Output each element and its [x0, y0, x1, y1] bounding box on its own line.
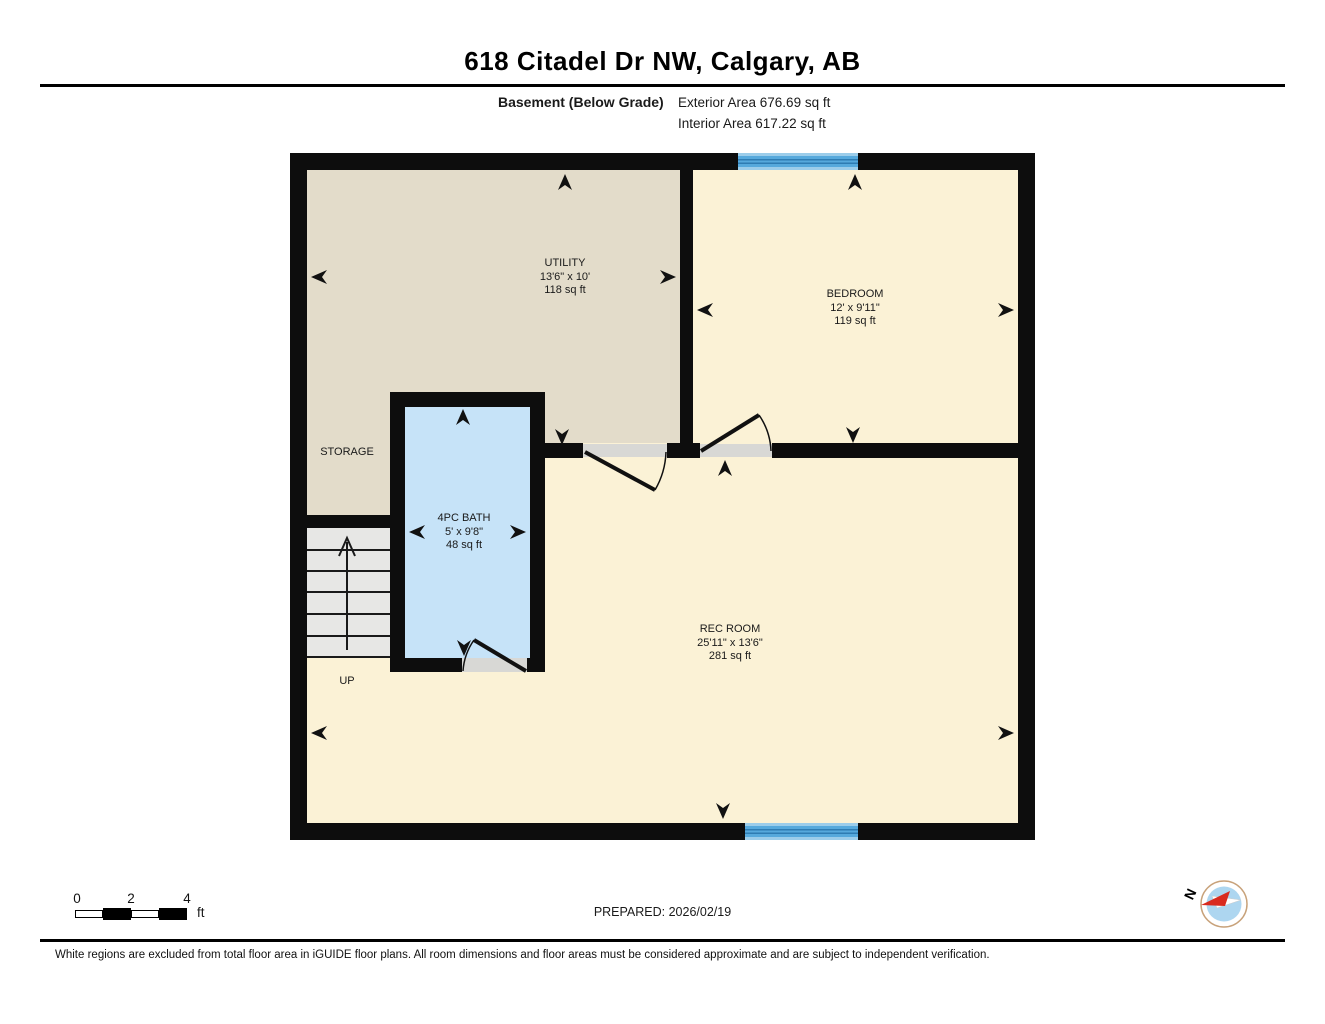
- wall-outer-bottom: [290, 823, 1035, 840]
- room-area: 118 sq ft: [540, 284, 590, 298]
- disclaimer-text: White regions are excluded from total fl…: [55, 949, 990, 961]
- scale-tick-2: 2: [127, 891, 135, 906]
- utility-room-label: UTILITY 13'6" x 10' 118 sq ft: [540, 257, 590, 298]
- room-name: BEDROOM: [827, 288, 884, 302]
- scale-tick-0: 0: [73, 891, 81, 906]
- wall-bedroom-recroom-divider: [772, 443, 1018, 458]
- floor-plan-page: 618 Citadel Dr NW, Calgary, AB Basement …: [0, 0, 1325, 1024]
- room-name: 4PC BATH: [438, 512, 491, 526]
- wall-utility-bedroom-divider: [680, 170, 693, 458]
- bedroom-door-sill: [700, 444, 772, 457]
- up-label: UP: [339, 675, 354, 687]
- utility-door-sill: [583, 444, 667, 457]
- scale-tick-4: 4: [183, 891, 191, 906]
- room-dims: 25'11" x 13'6": [697, 636, 763, 650]
- bedroom-window: [738, 153, 858, 170]
- rec-room-window: [745, 823, 858, 840]
- storage-label: STORAGE: [320, 446, 374, 458]
- room-area: 48 sq ft: [438, 539, 491, 553]
- bath-label: 4PC BATH 5' x 9'8" 48 sq ft: [438, 512, 491, 553]
- wall-outer-left: [290, 153, 307, 840]
- footer-divider-line: [40, 939, 1285, 942]
- wall-hall-segment-left: [545, 443, 583, 458]
- compass-icon: [1196, 876, 1252, 932]
- rec-room-label: REC ROOM 25'11" x 13'6" 281 sq ft: [697, 623, 763, 664]
- stairs: [307, 528, 390, 658]
- bath-door-sill: [462, 658, 527, 672]
- wall-outer-top: [290, 153, 1035, 170]
- room-name: REC ROOM: [697, 623, 763, 637]
- wall-hall-segment-mid: [667, 443, 700, 458]
- room-dims: 12' x 9'11": [827, 301, 884, 315]
- room-dims: 5' x 9'8": [438, 525, 491, 539]
- floor-plan: UTILITY 13'6" x 10' 118 sq ft BEDROOM 12…: [0, 0, 1325, 1024]
- wall-outer-right: [1018, 153, 1035, 840]
- room-area: 281 sq ft: [697, 650, 763, 664]
- room-name: UTILITY: [540, 257, 590, 271]
- room-dims: 13'6" x 10': [540, 270, 590, 284]
- room-area: 119 sq ft: [827, 315, 884, 329]
- bedroom-label: BEDROOM 12' x 9'11" 119 sq ft: [827, 288, 884, 329]
- prepared-date: PREPARED: 2026/02/19: [0, 905, 1325, 919]
